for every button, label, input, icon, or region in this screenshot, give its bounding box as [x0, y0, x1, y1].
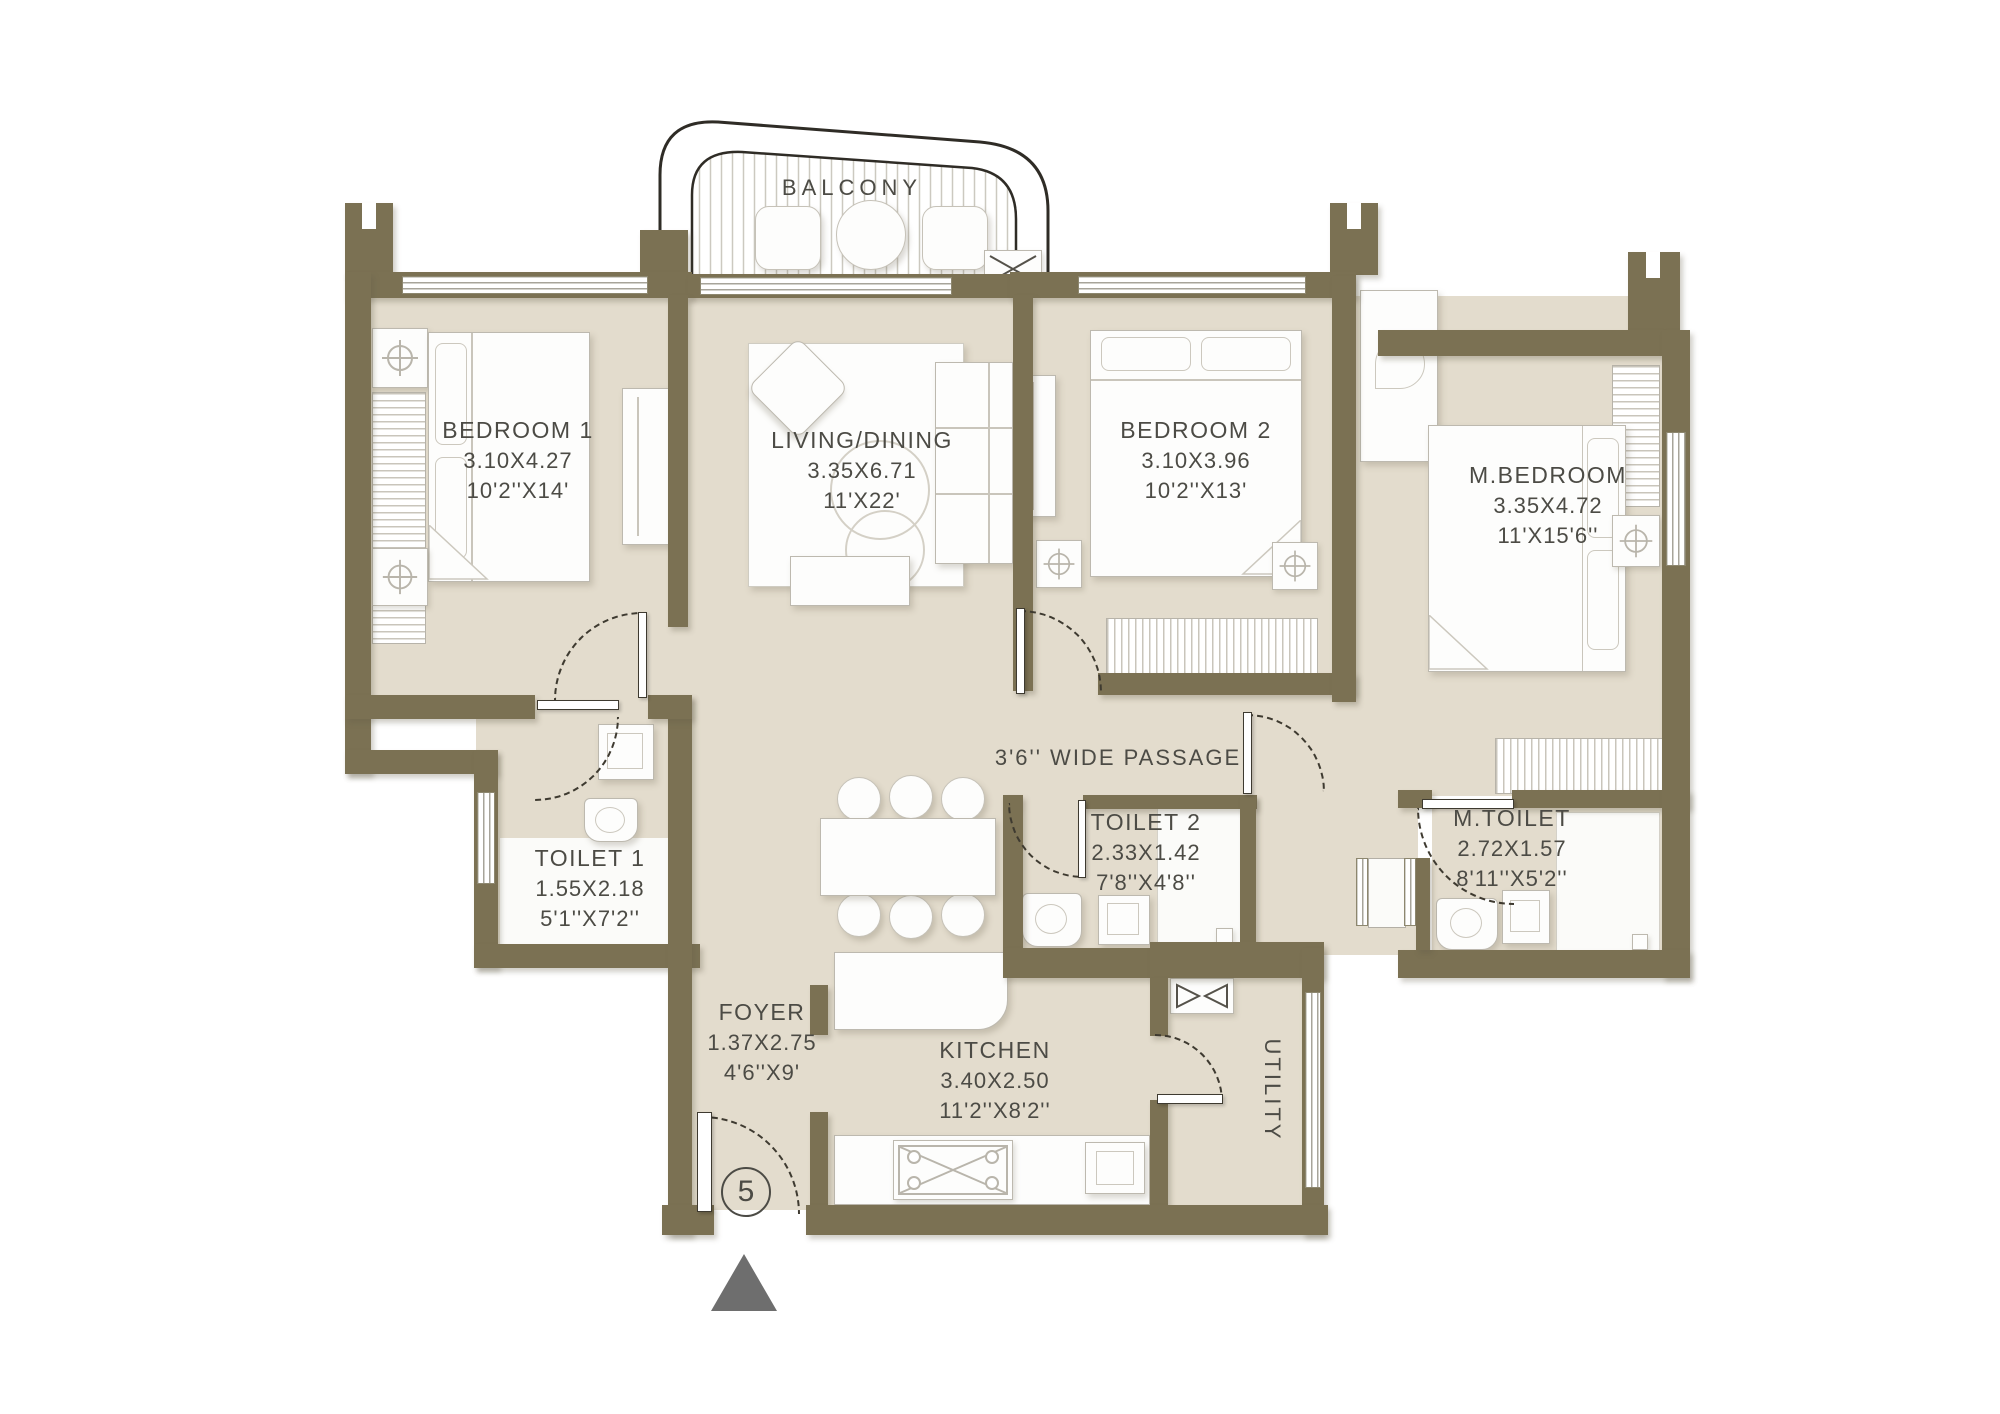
door-leaf: [1243, 712, 1252, 794]
dining-chair: [889, 895, 933, 939]
wall-notch: [1347, 203, 1361, 229]
hob-icon: [898, 1145, 1008, 1195]
window: [402, 276, 648, 294]
dining-chair: [941, 893, 985, 937]
toilet-wc: [1022, 893, 1082, 947]
bowtie-icon: [1175, 983, 1229, 1009]
door-leaf: [1016, 608, 1025, 694]
wall: [810, 1112, 828, 1208]
room-label-toilet1: TOILET 1 1.55X2.18 5'1''X7'2'': [535, 843, 646, 933]
balcony-table: [836, 200, 906, 270]
room-label-master-bedroom: M.BEDROOM 3.35X4.72 11'X15'6'': [1469, 460, 1627, 550]
floor-plan: BALCONY BEDROOM 1 3.10X4.27 10'2''X14' L…: [0, 0, 2000, 1414]
wall: [1150, 942, 1324, 978]
wardrobe: [1495, 738, 1669, 794]
sink-basin: [1096, 1151, 1134, 1185]
door-leaf: [537, 700, 619, 710]
passage-label: 3'6'' WIDE PASSAGE: [995, 745, 1241, 771]
room-name: M.TOILET: [1453, 803, 1571, 834]
room-dim-ft: 4'6''X9': [707, 1058, 816, 1088]
crosshair-icon: [1277, 548, 1313, 584]
wall: [474, 944, 700, 968]
room-dim-ft: 5'1''X7'2'': [535, 904, 646, 934]
window: [477, 792, 495, 884]
tv-console: [790, 556, 910, 606]
wall: [806, 1205, 1328, 1235]
wall: [1398, 950, 1690, 978]
dining-chair: [837, 777, 881, 821]
wc-seat: [1035, 904, 1067, 934]
room-dim-ft: 10'2''X14': [442, 476, 594, 506]
wall: [1416, 858, 1430, 950]
kitchen-counter: [834, 952, 1008, 1030]
room-dim-m: 1.55X2.18: [535, 874, 646, 904]
wall: [1332, 276, 1356, 702]
wall: [1003, 948, 1157, 978]
wc-seat: [1450, 908, 1482, 938]
wall: [1240, 795, 1256, 952]
wall: [648, 695, 692, 719]
nightstand: [372, 548, 428, 606]
utility-label: UTILITY: [1259, 1039, 1285, 1142]
room-dim-ft: 11'2''X8'2'': [939, 1096, 1050, 1126]
wall-notch: [1646, 252, 1660, 278]
entry-arrow-icon: [711, 1254, 777, 1311]
wall: [345, 695, 535, 719]
room-label-toilet2: TOILET 2 2.33X1.42 7'8''X4'8'': [1091, 807, 1202, 897]
room-dim-m: 3.40X2.50: [939, 1066, 1050, 1096]
balcony-chair: [755, 206, 821, 270]
wall: [1150, 1100, 1168, 1206]
dining-chair: [837, 893, 881, 937]
room-label-foyer: FOYER 1.37X2.75 4'6''X9': [707, 997, 816, 1087]
wall: [668, 695, 692, 1235]
side-unit: [622, 388, 672, 545]
room-label-kitchen: KITCHEN 3.40X2.50 11'2''X8'2'': [939, 1035, 1050, 1125]
window: [1666, 432, 1686, 566]
duct-shaft: [1368, 858, 1406, 928]
room-name: TOILET 1: [535, 843, 646, 874]
nightstand: [372, 328, 428, 388]
dining-table: [820, 818, 996, 896]
wall: [1378, 330, 1662, 356]
dining-chair: [889, 775, 933, 819]
sofa-line: [988, 363, 990, 563]
kitchen-sink: [1085, 1142, 1145, 1194]
door-leaf: [638, 612, 647, 698]
crosshair-icon: [379, 337, 421, 379]
room-dim-m: 3.35X4.72: [1469, 491, 1627, 521]
room-label-bedroom2: BEDROOM 2 3.10X3.96 10'2''X13': [1120, 415, 1272, 505]
vent: [1356, 858, 1368, 926]
room-dim-ft: 8'11''X5'2'': [1453, 864, 1571, 894]
wardrobe: [1106, 618, 1318, 675]
window-slider: [700, 277, 952, 295]
hob-stove: [893, 1140, 1013, 1200]
room-name: TOILET 2: [1091, 807, 1202, 838]
room-dim-ft: 7'8''X4'8'': [1091, 868, 1202, 898]
pillow: [1101, 337, 1191, 371]
wall-notch: [362, 203, 376, 229]
basin: [1107, 903, 1139, 935]
room-dim-m: 3.10X3.96: [1120, 446, 1272, 476]
wardrobe: [372, 392, 426, 644]
room-name: BEDROOM 2: [1120, 415, 1272, 446]
toilet-wc: [1436, 898, 1498, 950]
nightstand: [1272, 542, 1318, 590]
dining-chair: [941, 777, 985, 821]
window: [1305, 992, 1321, 1188]
basin: [1510, 900, 1540, 932]
toilet-wc: [584, 798, 638, 842]
room-name: KITCHEN: [939, 1035, 1050, 1066]
room-dim-m: 2.72X1.57: [1453, 834, 1571, 864]
unit-number: 5: [738, 1175, 755, 1209]
dresser: [1360, 290, 1438, 462]
floor-master-toilet-shower: [1556, 812, 1660, 954]
washbasin: [1098, 895, 1150, 945]
wall: [1662, 330, 1690, 978]
shelf-line: [637, 397, 639, 536]
bed-line: [1091, 379, 1301, 381]
entrance-door-leaf: [697, 1112, 712, 1212]
room-dim-ft: 11'X15'6'': [1469, 521, 1627, 551]
wall: [668, 295, 688, 627]
wall: [1098, 673, 1356, 695]
blanket-fold: [429, 525, 489, 581]
room-label-bedroom1: BEDROOM 1 3.10X4.27 10'2''X14': [442, 415, 594, 505]
blanket-fold: [1429, 615, 1489, 671]
door-leaf: [1078, 800, 1086, 878]
room-dim-ft: 10'2''X13': [1120, 476, 1272, 506]
window: [1078, 276, 1306, 294]
door-leaf: [1157, 1094, 1223, 1104]
room-name: LIVING/DINING: [771, 425, 953, 456]
balcony-label: BALCONY: [782, 175, 922, 201]
room-name: FOYER: [707, 997, 816, 1028]
pillow: [1201, 337, 1291, 371]
wall-pilaster: [640, 230, 688, 276]
room-dim-ft: 11'X22': [771, 486, 953, 516]
room-label-master-toilet: M.TOILET 2.72X1.57 8'11''X5'2'': [1453, 803, 1571, 893]
wc-seat: [595, 807, 625, 833]
nightstand: [1036, 540, 1082, 588]
balcony-chair: [922, 206, 988, 270]
room-dim-m: 2.33X1.42: [1091, 838, 1202, 868]
room-dim-m: 1.37X2.75: [707, 1028, 816, 1058]
room-name: BEDROOM 1: [442, 415, 594, 446]
room-dim-m: 3.10X4.27: [442, 446, 594, 476]
unit-number-badge: 5: [721, 1167, 771, 1217]
vent: [1404, 858, 1416, 926]
crosshair-icon: [380, 557, 420, 597]
room-dim-m: 3.35X6.71: [771, 456, 953, 486]
room-label-living: LIVING/DINING 3.35X6.71 11'X22': [771, 425, 953, 515]
drain-icon: [1632, 934, 1648, 950]
room-name: M.BEDROOM: [1469, 460, 1627, 491]
crosshair-icon: [1041, 546, 1077, 582]
utility-shaft: [1170, 978, 1234, 1014]
wall: [1150, 978, 1168, 1036]
